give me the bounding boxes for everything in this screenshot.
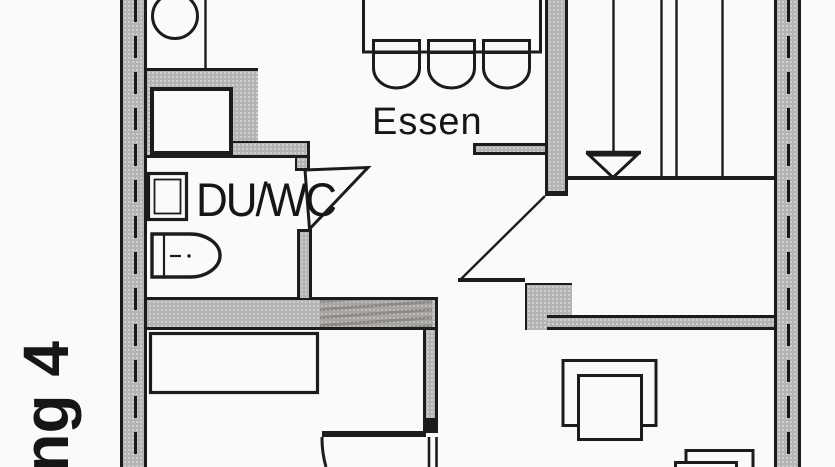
bedroom-door-leaf xyxy=(322,431,426,437)
armchair-icon xyxy=(563,361,656,440)
stair-down-arrow-icon xyxy=(589,155,637,178)
dining-chair-icon xyxy=(374,41,420,89)
bedroom-door-arc xyxy=(322,437,326,467)
toilet-dot xyxy=(187,254,190,257)
dining-chair-icon xyxy=(484,41,530,89)
toilet-icon xyxy=(152,234,220,277)
round-basin-icon xyxy=(153,0,198,39)
washbasin-inner xyxy=(155,180,181,214)
dining-table-icon xyxy=(364,0,541,52)
room-label-bath: DU/WC xyxy=(196,174,335,228)
plan-linework xyxy=(0,0,835,467)
floor-plan-canvas: Essen DU/WC ung 4 xyxy=(0,0,835,467)
hall-door-threshold xyxy=(458,278,525,282)
bed-icon xyxy=(151,334,318,393)
apartment-side-label: ung 4 xyxy=(14,341,78,467)
room-label-dining: Essen xyxy=(372,101,483,144)
dining-chair-icon xyxy=(429,41,475,89)
hall-door-swing xyxy=(459,196,545,281)
armchair-partial-icon xyxy=(676,451,754,467)
